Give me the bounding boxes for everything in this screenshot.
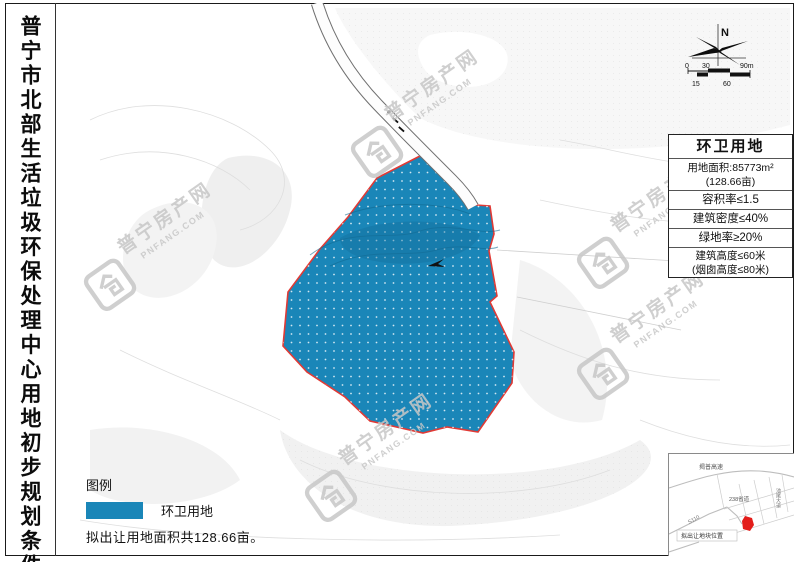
height-value: 建筑高度≤60米 <box>669 249 792 263</box>
info-row-green: 绿地率≥20% <box>669 228 792 247</box>
area-mu: (128.66亩) <box>669 175 792 189</box>
scale-label-90: 90m <box>740 63 754 70</box>
density-value: 建筑密度≤40% <box>669 210 792 228</box>
scale-label-15: 15 <box>692 81 700 88</box>
area-value: 用地面积:85773m² <box>669 161 792 175</box>
inset-site-marker <box>742 516 754 531</box>
inset-avenue-label: 池尾大道 <box>775 487 781 509</box>
legend-item: 环卫用地 <box>86 501 326 520</box>
legend-heading: 图例 <box>86 475 326 494</box>
legend-item-label: 环卫用地 <box>161 501 213 520</box>
info-row-far: 容积率≤1.5 <box>669 190 792 209</box>
far-value: 容积率≤1.5 <box>669 191 792 209</box>
chimney-height-value: (烟囱高度≤80米) <box>669 263 792 277</box>
legend: 图例 环卫用地 拟出让用地面积共128.66亩。 <box>86 475 326 546</box>
info-row-density: 建筑密度≤40% <box>669 209 792 228</box>
parcel-info-box: 环卫用地 用地面积:85773m² (128.66亩) 容积率≤1.5 建筑密度… <box>668 134 793 278</box>
map-area: N 0 30 90m 15 60 普宁房产网 PNFANG.COM 普宁房产网 … <box>56 3 794 556</box>
north-label: N <box>721 27 729 39</box>
planning-map-page: 普宁市北部生活垃圾环保处理中心用地初步规划条件 <box>0 0 800 562</box>
scale-label-30: 30 <box>702 63 710 70</box>
inset-s-road-label: S110 <box>687 515 701 526</box>
scale-label-60: 60 <box>723 81 731 88</box>
parcel-polygon <box>283 156 514 433</box>
inset-map-drawing: 揭普高速 238省道 S110 池尾大道 拟出让地块位置 <box>669 454 794 556</box>
scale-label-0: 0 <box>685 63 689 70</box>
inset-expressway-label: 揭普高速 <box>699 463 723 471</box>
info-title: 环卫用地 <box>669 135 792 158</box>
inset-location-map: 揭普高速 238省道 S110 池尾大道 拟出让地块位置 <box>668 453 794 556</box>
info-row-area: 用地面积:85773m² (128.66亩) <box>669 158 792 190</box>
title-column: 普宁市北部生活垃圾环保处理中心用地初步规划条件 <box>5 3 56 556</box>
legend-swatch <box>86 502 143 519</box>
inset-location-label: 拟出让地块位置 <box>681 532 723 540</box>
inset-road-label: 238省道 <box>729 495 750 503</box>
info-row-height: 建筑高度≤60米 (烟囱高度≤80米) <box>669 247 792 277</box>
green-value: 绿地率≥20% <box>669 229 792 247</box>
page-title: 普宁市北部生活垃圾环保处理中心用地初步规划条件 <box>15 15 45 562</box>
legend-note: 拟出让用地面积共128.66亩。 <box>86 527 326 546</box>
